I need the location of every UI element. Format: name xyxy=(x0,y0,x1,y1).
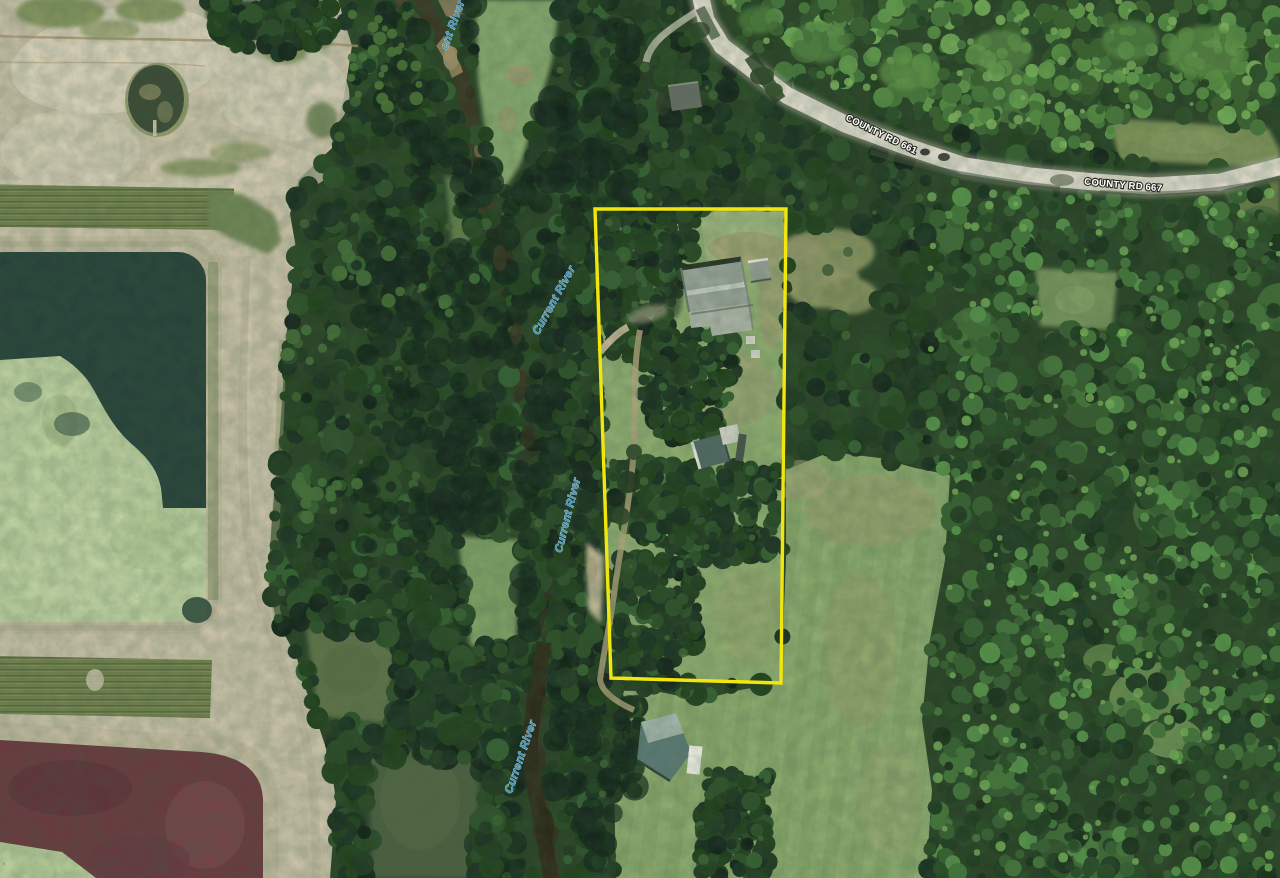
svg-text:x: x xyxy=(2,860,6,867)
